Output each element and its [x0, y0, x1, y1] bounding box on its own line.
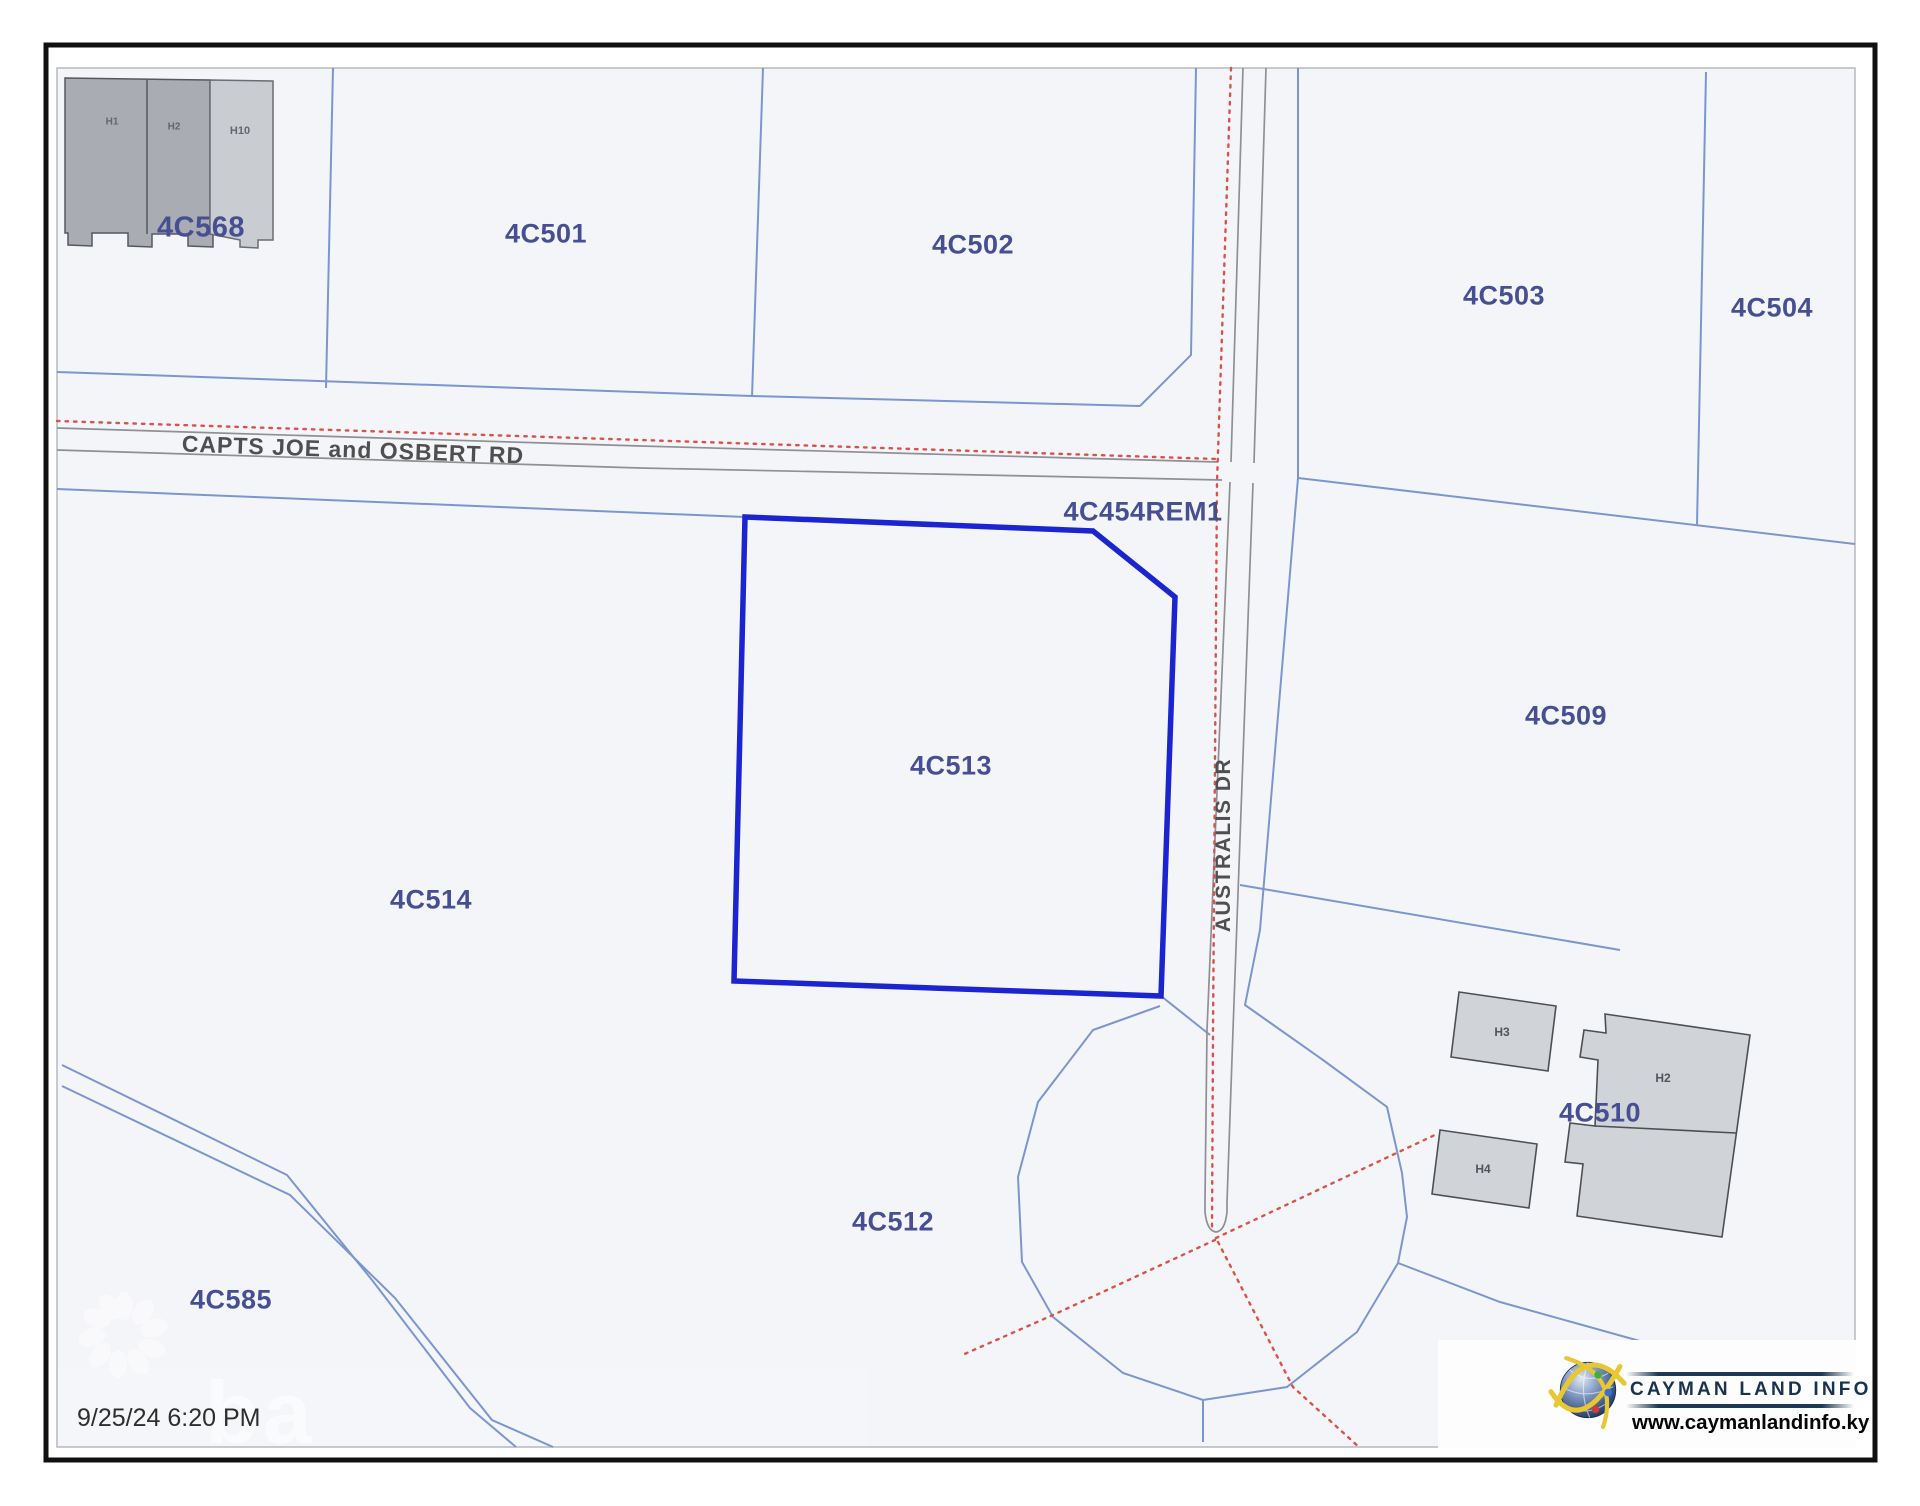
logo-brand-name: CAYMAN LAND INFO: [1630, 1379, 1872, 1401]
building-label-h1: H1: [106, 117, 119, 128]
logo-rule-bottom: [1626, 1404, 1854, 1408]
parcel-label-4c510[interactable]: 4C510: [1559, 1098, 1641, 1129]
globe-icon: [1546, 1346, 1630, 1434]
parcel-label-4c513[interactable]: 4C513: [910, 751, 992, 782]
building-label-h2: H2: [1655, 1071, 1670, 1085]
parcel-label-4c509[interactable]: 4C509: [1525, 701, 1607, 732]
parcel-label-4c585[interactable]: 4C585: [190, 1285, 272, 1316]
parcel-label-4c514[interactable]: 4C514: [390, 885, 472, 916]
building-label-h2-strip: H2: [168, 122, 181, 133]
building-label-h10: H10: [230, 125, 250, 137]
road-label-australis-dr: AUSTRALIS DR: [1212, 758, 1236, 932]
parcel-label-4c502[interactable]: 4C502: [932, 230, 1014, 261]
building-label-h4: H4: [1475, 1162, 1490, 1176]
parcel-label-4c512[interactable]: 4C512: [852, 1207, 934, 1238]
parcel-label-4c568[interactable]: 4C568: [157, 212, 245, 245]
cayman-land-info-logo: CAYMAN LAND INFO www.caymanlandinfo.ky: [1438, 1340, 1856, 1448]
parcel-label-4c454rem1[interactable]: 4C454REM1: [1063, 497, 1222, 528]
logo-rule-top: [1626, 1372, 1854, 1376]
parcel-label-4c503[interactable]: 4C503: [1463, 281, 1545, 312]
parcel-label-4c504[interactable]: 4C504: [1731, 293, 1813, 324]
land-registry-map-page: ba 4C568 4C501 4C502 4C503 4C504 4C454RE…: [0, 0, 1920, 1506]
timestamp: 9/25/24 6:20 PM: [77, 1404, 260, 1433]
logo-website-url: www.caymanlandinfo.ky: [1632, 1411, 1869, 1435]
parcel-label-4c501[interactable]: 4C501: [505, 219, 587, 250]
building-label-h3: H3: [1494, 1025, 1509, 1039]
